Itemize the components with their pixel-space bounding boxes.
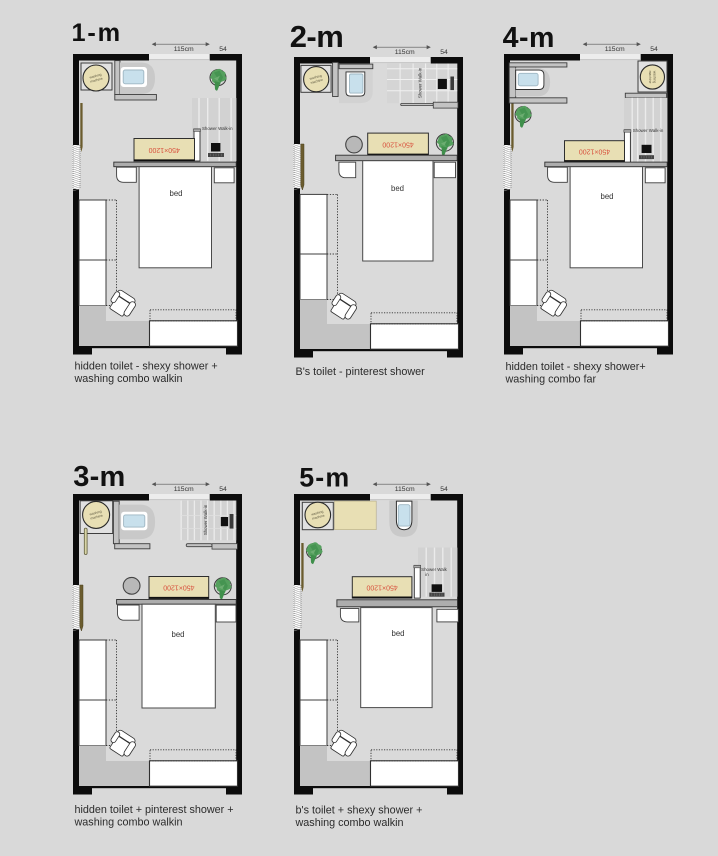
svg-text:450×1200: 450×1200	[579, 147, 610, 154]
svg-text:Shower Walk-in: Shower Walk-in	[202, 126, 233, 131]
svg-text:washing combo walkin: washing combo walkin	[74, 373, 183, 385]
svg-text:115cm: 115cm	[174, 46, 194, 53]
svg-text:4-m: 4-m	[503, 22, 555, 54]
svg-text:115cm: 115cm	[395, 486, 415, 493]
svg-text:b's toilet + shexy shower +: b's toilet + shexy shower +	[296, 805, 423, 817]
svg-text:bed: bed	[600, 192, 613, 201]
svg-text:54: 54	[440, 486, 448, 493]
svg-text:bed: bed	[169, 189, 182, 198]
svg-text:54: 54	[219, 46, 227, 53]
svg-text:450×1200: 450×1200	[366, 584, 397, 591]
svg-text:Shower Walk-in: Shower Walk-in	[633, 128, 664, 133]
svg-text:hidden toilet - shexy shower+: hidden toilet - shexy shower+	[506, 361, 646, 373]
svg-text:washing combo walkin: washing combo walkin	[295, 817, 404, 829]
svg-text:Shower Walk-in: Shower Walk-in	[203, 504, 208, 535]
svg-text:in: in	[425, 572, 429, 577]
svg-text:450×1200: 450×1200	[382, 140, 413, 147]
svg-text:54: 54	[440, 49, 448, 56]
svg-text:bed: bed	[171, 630, 184, 639]
svg-text:450×1200: 450×1200	[163, 584, 194, 591]
svg-text:washing combo walkin: washing combo walkin	[74, 817, 183, 829]
svg-text:450×1200: 450×1200	[148, 146, 179, 153]
svg-text:115cm: 115cm	[395, 49, 415, 56]
svg-text:1-m: 1-m	[72, 19, 122, 47]
svg-text:54: 54	[650, 46, 658, 53]
svg-text:bed: bed	[391, 629, 404, 638]
svg-text:B's toilet - pinterest shower: B's toilet - pinterest shower	[296, 366, 426, 378]
svg-text:5-m: 5-m	[299, 463, 350, 493]
svg-text:bed: bed	[391, 184, 404, 193]
svg-text:hidden toilet - shexy shower +: hidden toilet - shexy shower +	[75, 361, 218, 373]
svg-text:washing combo far: washing combo far	[505, 374, 597, 386]
svg-text:hidden toilet + pinterest show: hidden toilet + pinterest shower +	[75, 804, 234, 816]
svg-text:2-m: 2-m	[290, 19, 344, 54]
svg-text:Shower Walk-in: Shower Walk-in	[417, 67, 422, 98]
svg-text:machine: machine	[648, 71, 652, 84]
svg-text:54: 54	[219, 486, 227, 493]
svg-text:3-m: 3-m	[73, 461, 125, 493]
svg-text:115cm: 115cm	[605, 46, 625, 53]
svg-text:115cm: 115cm	[174, 486, 194, 493]
